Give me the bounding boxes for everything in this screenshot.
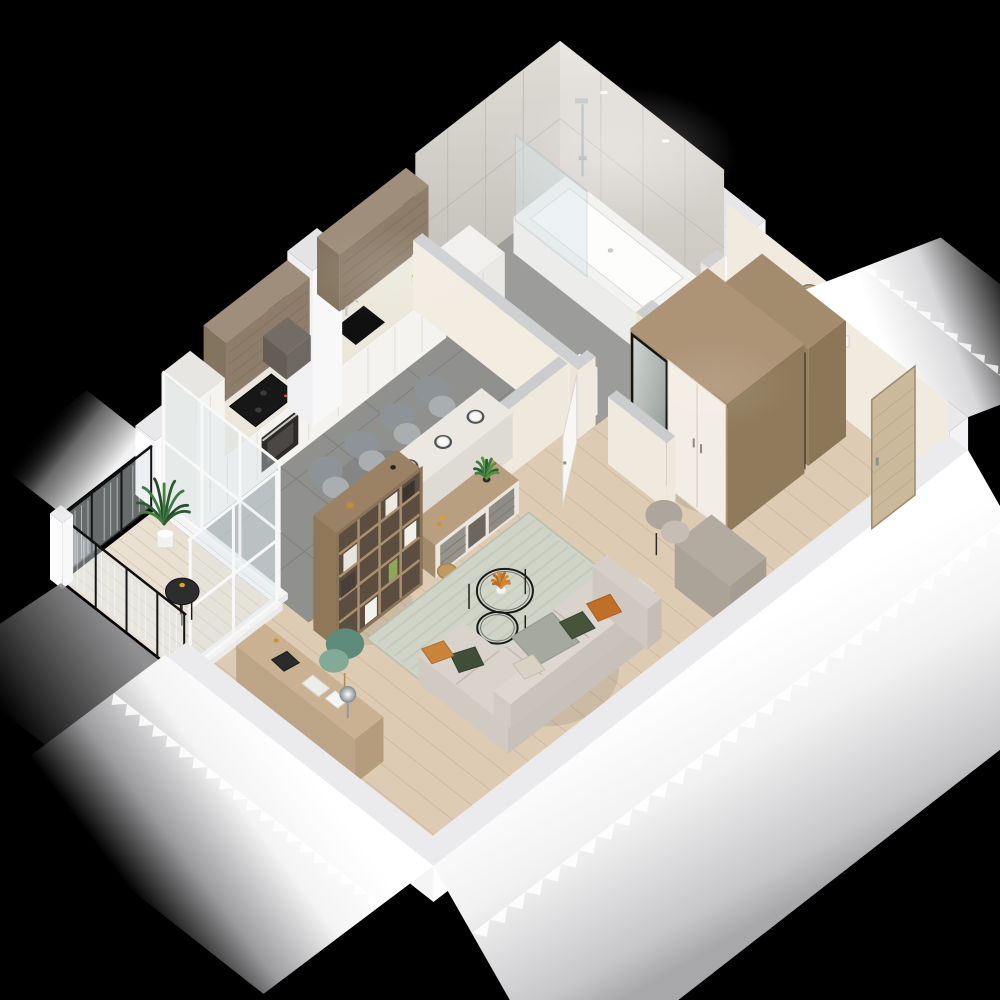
ceiling-spot [600,91,607,94]
floor-plan-viewport [0,0,1000,1000]
shower-head [575,98,588,103]
wardrobe-handle [693,438,695,447]
bathtub-drain [608,248,614,252]
shelf-top-vase [390,465,396,469]
cooktop-indicator [284,395,287,398]
hall-door-handle [563,461,566,464]
desk-accent [274,638,279,642]
balcony-plant-pot [157,530,173,548]
shower-mixer [579,156,587,160]
floor-plan-3d-render [0,0,1000,1000]
dinner-plate [469,412,481,422]
candle [179,583,185,587]
balcony-side-table [165,578,199,604]
hall-glow [634,340,794,430]
entry-door-handle [876,457,879,465]
dinner-plate [437,437,449,447]
orange-fruit [439,516,445,520]
shelf-top-bowl [346,502,354,508]
balcony-corner-post [50,505,73,589]
desk-lamp-globe [340,686,356,702]
cooktop-ring [255,407,262,412]
kitchen-counter-glow [304,227,484,317]
orange-fruit [437,522,442,526]
cooktop-ring [260,390,267,395]
wardrobe-handle [700,444,702,453]
ceiling-spot [662,140,669,143]
